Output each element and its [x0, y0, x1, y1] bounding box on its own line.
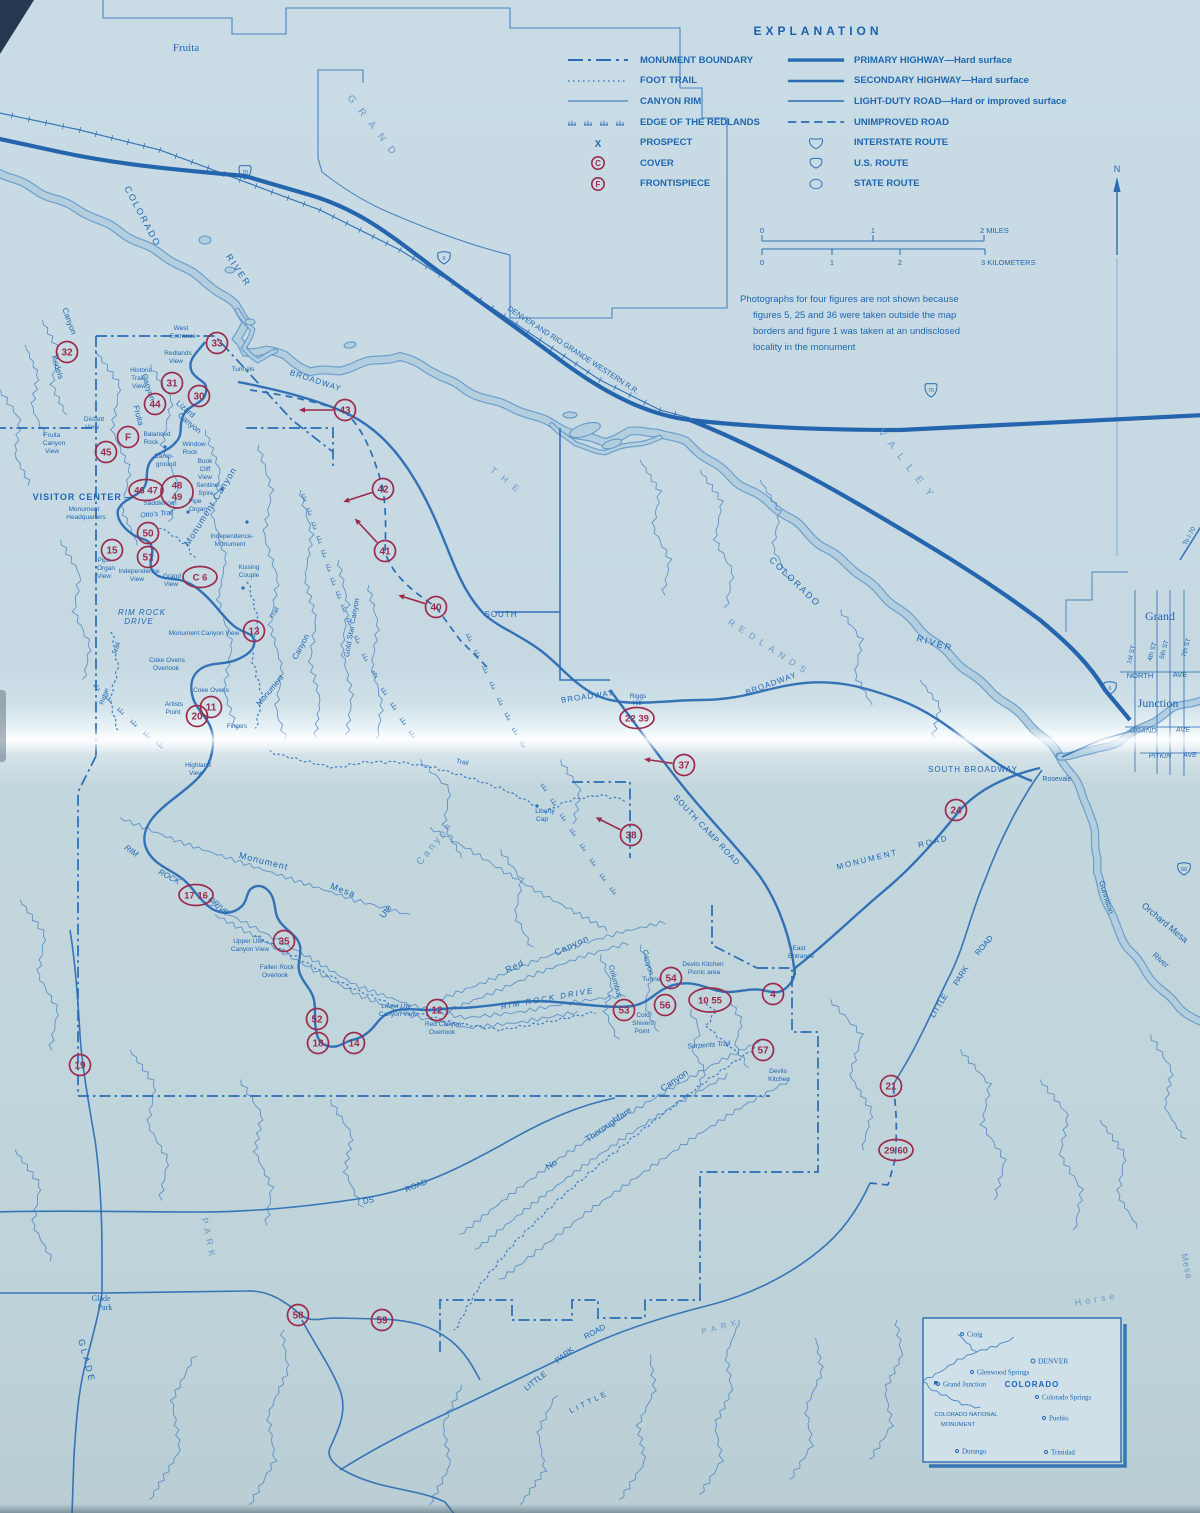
map-label: RIM ROCK — [118, 608, 166, 617]
map-label: 7th ST — [1181, 637, 1193, 657]
map-label: VISITOR CENTER — — [33, 492, 136, 502]
figure-number: 40 — [430, 603, 442, 614]
map-label: Overlook — [262, 972, 289, 979]
figure-marker-57: 57 — [753, 1040, 774, 1061]
map-label: SOUTH BROADWAY — [928, 765, 1018, 774]
light-duty-road — [70, 930, 102, 1293]
canyon-rim — [241, 1080, 274, 1226]
legend-label: PRIMARY HIGHWAY—Hard surface — [854, 55, 1012, 66]
figure-marker-43: 43 — [299, 400, 356, 421]
map-label: Canyon — [641, 949, 656, 976]
map-label: Fingers — [227, 724, 247, 730]
map-label: Park — [98, 1303, 113, 1312]
figure-number: 48 — [172, 481, 183, 492]
figure-marker-40: 40 — [398, 594, 446, 617]
figure-number: 57 — [757, 1046, 769, 1057]
map-label: No — [544, 1157, 559, 1172]
figure-number: 51 — [142, 553, 154, 564]
scale-km-rule — [762, 249, 985, 255]
canyon-rim — [430, 827, 607, 931]
legend-label: FRONTISPIECE — [640, 178, 710, 189]
light-duty-road-icon — [786, 94, 846, 108]
map-label: Cap — [536, 816, 548, 823]
map-note: Photographs for four figures are not sho… — [740, 292, 1022, 356]
map-label: Ute — [377, 903, 393, 920]
map-label: Mesa — [1179, 1253, 1194, 1281]
canyon-rim — [520, 1396, 558, 1505]
inset-state-label: COLORADO — [1005, 1380, 1060, 1389]
map-label: Serpents Trail — [687, 1040, 731, 1050]
map-label: Monument — [238, 850, 289, 872]
legend-item-secondary-highway: SECONDARY HIGHWAY—Hard surface — [786, 71, 1067, 92]
map-label: View — [130, 576, 144, 583]
monument-boundary — [246, 428, 333, 470]
map-label: Rock — [144, 439, 160, 446]
map-label: Redlands — [164, 350, 192, 357]
shield-number: 6 — [442, 256, 445, 262]
figure-number: C 6 — [193, 573, 208, 584]
redlands-edge-tick — [326, 563, 332, 572]
map-label: Canyon — [290, 633, 311, 662]
layer-boundary — [0, 336, 818, 1352]
canyon-rim — [150, 1356, 197, 1500]
map-label: View — [198, 474, 212, 481]
map-label: West — [174, 325, 189, 332]
frontispiece-icon: F — [566, 177, 630, 191]
canyon-rim — [699, 1320, 739, 1495]
figure-number: 45 — [100, 448, 112, 459]
map-label: SOUTH — [485, 610, 518, 619]
interstate-shield: 70 — [925, 384, 937, 397]
figure-number: 54 — [665, 974, 677, 985]
map-label: Cold — [636, 1012, 650, 1019]
figure-arrow — [601, 820, 621, 830]
figure-number: 30 — [193, 392, 205, 403]
legend-item-frontispiece: FFRONTISPIECE — [566, 174, 760, 195]
map-label: Canyon — [415, 819, 456, 867]
legend-label: COVER — [640, 158, 674, 169]
redlands-edge-tick — [580, 842, 588, 851]
map-label: Glade — [91, 1294, 111, 1303]
redlands-edge-tick — [550, 797, 558, 806]
map-label: Tunnels — [232, 366, 256, 373]
layer-labels: FruitaGRANDVALLEYTHEREDLANDSCOLORADORIVE… — [33, 42, 1198, 1415]
figure-number: 52 — [311, 1015, 323, 1026]
inset-city-label: Trinidad — [1051, 1449, 1075, 1457]
map-label: Coke Ovens — [193, 687, 230, 694]
foot-trail — [546, 795, 625, 813]
map-label: REDLANDS — [726, 617, 813, 678]
legend-item-us-route: U.S. ROUTE — [786, 153, 1067, 174]
map-label: Entrance — [788, 953, 814, 960]
legend-label: STATE ROUTE — [854, 178, 920, 189]
redlands-edge-tick — [400, 716, 408, 725]
river — [1059, 756, 1200, 1021]
scale-km-label: 3 KILOMETERS — [981, 258, 1036, 267]
unimproved-road-icon — [786, 115, 846, 129]
figure-marker-56: 56 — [655, 995, 676, 1016]
figure-number: 29 60 — [884, 1146, 908, 1157]
us-route-icon — [786, 156, 846, 170]
primary-highway-icon — [786, 53, 846, 67]
canyon-rim — [619, 1355, 656, 1500]
figure-marker-17-16: 17 16 — [179, 885, 213, 906]
legend-item-foot-trail: FOOT TRAIL — [566, 71, 760, 92]
map-label: Lower Ute — [381, 1003, 411, 1010]
redlands-edge-tick — [302, 493, 308, 502]
canyon-rim — [841, 609, 872, 705]
map-label: Kitchen — [768, 1076, 790, 1083]
map-label: Shivers — [632, 1020, 654, 1027]
map-label: View — [164, 581, 178, 588]
north-label: N — [1114, 164, 1121, 174]
unimproved-road — [888, 1087, 896, 1185]
map-label: Headquarters — [66, 514, 106, 521]
figure-marker-41: 41 — [355, 519, 396, 562]
figure-arrowhead — [343, 497, 350, 502]
redlands-edge-tick — [541, 782, 549, 791]
light-duty-road — [893, 770, 1042, 1085]
map-label: Rosevale — [1042, 776, 1071, 783]
inset-city-label: Colorado Springs — [1042, 1394, 1091, 1402]
legend-item-state-route: STATE ROUTE — [786, 174, 1067, 195]
map-label: Devils Kitchen — [682, 961, 724, 968]
figure-number: 38 — [625, 831, 637, 842]
figure-number: 44 — [149, 400, 161, 411]
redlands-edge-tick — [321, 549, 327, 558]
foot-trail — [270, 751, 537, 805]
map-label: VALLEY — [876, 427, 941, 506]
figure-number: 17 16 — [184, 891, 208, 902]
figure-number: 21 — [885, 1082, 897, 1093]
map-label: Highland — [185, 762, 211, 769]
inset-city-label: Craig — [967, 1331, 983, 1339]
legend-label: EDGE OF THE REDLANDS — [640, 117, 760, 128]
shield-number: 6 — [1108, 686, 1111, 692]
river-island — [245, 319, 255, 325]
canyon-rim — [15, 1150, 51, 1261]
figure-number: 22 39 — [625, 714, 649, 725]
redlands-edge-tick — [362, 653, 369, 662]
figure-number: 37 — [678, 761, 690, 772]
light-duty-road — [0, 1291, 480, 1380]
secondary-highway-icon — [786, 74, 846, 88]
fold-shadow — [0, 690, 6, 762]
point-of-interest-dot — [163, 445, 166, 448]
map-label: Canyon — [659, 1068, 690, 1094]
river-island — [344, 341, 357, 349]
unimproved-road — [250, 390, 490, 670]
legend-item-light-duty-road: LIGHT-DUTY ROAD—Hard or improved surface — [786, 91, 1067, 112]
redlands-edge-tick — [156, 740, 165, 748]
figure-marker-29-60: 29 60 — [879, 1140, 913, 1161]
map-label: Couple — [239, 572, 260, 579]
canyon-rim — [429, 1385, 461, 1505]
foot-trail-icon — [566, 74, 630, 88]
figure-marker-53: 53 — [614, 1000, 635, 1021]
canyon-rim — [1, 390, 30, 486]
map-label: MONUMENT — [836, 848, 899, 872]
map-label: RIVER — [915, 633, 954, 653]
map-label: Canyon — [43, 440, 66, 447]
canyon-rim — [460, 1039, 762, 1235]
figure-arrow — [349, 493, 372, 500]
canyon-rim — [249, 1330, 288, 1505]
redlands-edge-tick — [372, 670, 379, 679]
redlands-edge-tick — [117, 706, 126, 714]
map-label: Red — [504, 958, 526, 975]
map-label: Monument — [215, 541, 246, 548]
figure-number: 50 — [142, 529, 154, 540]
redlands-edge-tick — [354, 635, 361, 644]
figure-number: 15 — [106, 546, 118, 557]
map-label: Distant — [84, 416, 104, 423]
figure-arrowhead — [299, 407, 305, 413]
map-label: Fruita — [173, 42, 199, 54]
canyon-rim — [475, 1073, 727, 1249]
railroad-tick — [586, 370, 589, 375]
figure-marker-19: 19 — [70, 1055, 91, 1076]
interstate-route-icon — [786, 136, 846, 150]
canyon-rim — [640, 460, 671, 596]
scale-km-label: 1 — [830, 258, 834, 267]
legend-title: EXPLANATION — [560, 24, 1076, 38]
figure-number: 46 47 — [134, 486, 158, 497]
monument-boundary — [712, 905, 757, 968]
figure-number: 10 55 — [698, 996, 722, 1007]
figure-marker-45: 45 — [96, 442, 117, 463]
figure-marker-58: 58 — [288, 1305, 309, 1326]
secondary-highway — [795, 768, 1040, 968]
map-label: Canyon — [553, 933, 591, 958]
inset-city-label: Grand Junction — [943, 1381, 986, 1389]
redlands-edge-tick — [466, 633, 473, 642]
legend-label: FOOT TRAIL — [640, 75, 697, 86]
map-label: Rock — [183, 449, 199, 456]
inset-monument-label: MONUMENT — [941, 1422, 976, 1428]
monument-boundary — [440, 1290, 700, 1352]
point-of-interest-dot — [241, 586, 244, 589]
map-label: Gold Star Canyon — [342, 597, 361, 657]
monument-boundary — [700, 968, 818, 1290]
map-label: NORTH — [1127, 671, 1154, 680]
canyon-rim-icon — [566, 94, 630, 108]
street-line — [1066, 572, 1128, 632]
figure-number: 33 — [211, 339, 223, 350]
map-label: Hill — [632, 700, 642, 707]
map-label: View — [169, 358, 183, 365]
figure-number: 35 — [278, 937, 290, 948]
map-legend: EXPLANATION MONUMENT BOUNDARYFOOT TRAILC… — [560, 24, 1200, 38]
map-label: Liberty — [535, 808, 555, 815]
legend-label: CANYON RIM — [640, 96, 701, 107]
scale-km-label: 2 — [898, 258, 902, 267]
redlands-edge-tick — [130, 718, 139, 726]
svg-text:X: X — [595, 139, 602, 150]
map-label: Point — [166, 709, 181, 716]
light-duty-road — [72, 1293, 102, 1513]
inset-city-label: Durango — [962, 1448, 987, 1456]
map-label: Junction — [1138, 696, 1179, 710]
legend-label: PROSPECT — [640, 137, 692, 148]
map-label: Grand — [1145, 609, 1175, 623]
map-label: Kissing — [239, 564, 260, 571]
map-label: Canyon View — [231, 946, 269, 953]
inset-monument-label: COLORADO NATIONAL — [934, 1412, 998, 1418]
legend-item-monument-boundary: MONUMENT BOUNDARY — [566, 50, 760, 71]
map-label: Cliff — [199, 466, 210, 473]
railroad-tick — [550, 346, 553, 351]
redlands-edge-tick — [505, 712, 512, 721]
shield-number: 70 — [928, 388, 934, 394]
map-label: Red Canyon — [425, 1021, 462, 1028]
point-of-interest-dot — [245, 520, 248, 523]
figure-number: 13 — [248, 627, 260, 638]
inset-city-label: Pueblo — [1049, 1415, 1069, 1423]
legend-label: UNIMPROVED ROAD — [854, 117, 949, 128]
figure-marker-35: 35 — [274, 931, 295, 952]
figure-marker-4: 4 — [763, 984, 784, 1005]
map-label: Grand — [163, 573, 181, 580]
svg-text:C: C — [595, 159, 601, 168]
map-label: River — [1151, 951, 1171, 970]
redlands-edge-tick — [331, 577, 338, 586]
cover-icon: C — [566, 156, 630, 170]
map-label: GRAND — [1129, 726, 1157, 735]
canyon-rim — [700, 470, 734, 608]
figure-number: 49 — [172, 492, 183, 503]
figure-marker-33: 33 — [207, 333, 228, 354]
figure-marker-38: 38 — [596, 817, 642, 845]
map-label: Canyon — [60, 307, 78, 336]
legend-item-canyon-rim: CANYON RIM — [566, 91, 760, 112]
map-label: LITTLE — [568, 1388, 610, 1415]
map-label: ROAD — [404, 1177, 429, 1194]
redlands-edge-tick — [381, 686, 389, 695]
figure-number: F — [125, 433, 131, 444]
map-label: View — [189, 770, 203, 777]
map-label: Columbus — [607, 964, 624, 999]
figure-marker-37: 37 — [644, 755, 694, 776]
foot-trail — [454, 1047, 754, 1330]
monument-map: FruitaGRANDVALLEYTHEREDLANDSCOLORADORIVE… — [0, 0, 1200, 1513]
map-label: Mesa — [329, 881, 357, 899]
canyon-rim — [368, 585, 384, 740]
figure-marker-31: 31 — [162, 373, 183, 394]
map-label: SOUTH CAMP ROAD — [672, 793, 742, 868]
map-label: THE — [488, 465, 527, 499]
redlands-edge-tick — [336, 590, 343, 599]
monument-boundary-icon — [566, 53, 630, 67]
figure-marker-10-55: 10 55 — [689, 988, 731, 1012]
svg-text:F: F — [596, 180, 601, 189]
map-label: Riggs — [630, 693, 647, 700]
redlands-edge-tick — [93, 682, 101, 690]
figure-arrow — [359, 523, 377, 543]
note-line-3: borders and figure 1 was taken at an und… — [740, 324, 1022, 340]
map-label: AVE — [1182, 752, 1197, 759]
map-label: Upper Ute — [233, 938, 263, 945]
map-label: Camp- — [154, 453, 174, 460]
legend-item-prospect: XPROSPECT — [566, 132, 760, 153]
figure-number: 43 — [339, 406, 351, 417]
map-label: LITTLE — [522, 1369, 548, 1392]
scale-bar: 012 MILES0123 KILOMETERS — [760, 226, 1036, 267]
redlands-edge-tick — [307, 507, 313, 516]
redlands-edge-tick — [570, 827, 578, 836]
note-line-1: Photographs for four figures are not sho… — [740, 292, 1022, 308]
map-label: Book — [198, 458, 214, 465]
map-label: LITTLE — [928, 992, 950, 1019]
inset-city-label: DENVER — [1038, 1357, 1068, 1366]
map-label: AVE — [1175, 725, 1192, 734]
map-label: Fallen Rock — [260, 964, 295, 971]
figure-number: 12 — [431, 1006, 443, 1017]
canyon-rim — [831, 999, 873, 1150]
secondary-highway — [610, 690, 795, 975]
canyon-rim — [789, 1338, 823, 1479]
layer-redlands-edge — [93, 493, 617, 895]
legend-label: U.S. ROUTE — [854, 158, 908, 169]
redlands-edge-tick — [390, 701, 398, 710]
map-label: View — [45, 448, 59, 455]
figure-marker-52: 52 — [307, 1009, 328, 1030]
unimproved-road — [870, 1183, 888, 1185]
light-duty-road — [495, 428, 610, 680]
map-label: PARK — [553, 1345, 576, 1366]
prospect-icon: X — [566, 136, 630, 150]
map-label: Fruita — [44, 432, 61, 439]
canyon-rim — [1100, 1120, 1137, 1229]
map-label: Organ — [97, 565, 115, 572]
canyon-rim — [25, 345, 44, 436]
railroad-tick — [574, 362, 577, 367]
redlands-edge-tick — [317, 535, 323, 544]
redlands-edge-tick — [512, 727, 520, 736]
map-label: View — [97, 573, 111, 580]
map-label: Trail — [269, 606, 282, 621]
map-label: Balanced — [143, 431, 170, 438]
us-route-shield: 50 — [1178, 863, 1191, 875]
light-duty-road — [0, 1098, 615, 1212]
redlands-edge-tick — [409, 729, 417, 738]
map-label: Otto's Trail — [140, 510, 174, 520]
river-island — [563, 412, 577, 418]
canyon-rim — [438, 921, 666, 999]
figure-marker-51: 51 — [138, 547, 159, 568]
canyon-rim — [61, 540, 91, 680]
figure-number: 24 — [950, 806, 962, 817]
scale-km-label: 0 — [760, 258, 764, 267]
redlands-edge-icon — [566, 115, 630, 129]
map-label: Coke Ovens — [149, 657, 186, 664]
canyon-rim — [499, 1078, 789, 1279]
legend-label: SECONDARY HIGHWAY—Hard surface — [854, 75, 1029, 86]
legend-item-cover: CCOVER — [566, 153, 760, 174]
north-arrow-head — [1113, 177, 1120, 192]
redlands-edge-tick — [497, 697, 504, 706]
figure-number: 20 — [191, 712, 203, 723]
figure-number: 59 — [376, 1316, 388, 1327]
legend-label: LIGHT-DUTY ROAD—Hard or improved surface — [854, 96, 1067, 107]
figure-marker-24: 24 — [946, 800, 967, 821]
layer-furniture: 012 MILES0123 KILOMETERSNCraigDENVERGlen… — [760, 164, 1125, 1466]
figure-number: 53 — [618, 1006, 630, 1017]
map-label: Picnic area — [688, 969, 721, 976]
scale-miles-label: 0 — [760, 226, 764, 235]
map-label: ROAD — [917, 833, 949, 849]
scale-miles-label: 1 — [871, 226, 875, 235]
